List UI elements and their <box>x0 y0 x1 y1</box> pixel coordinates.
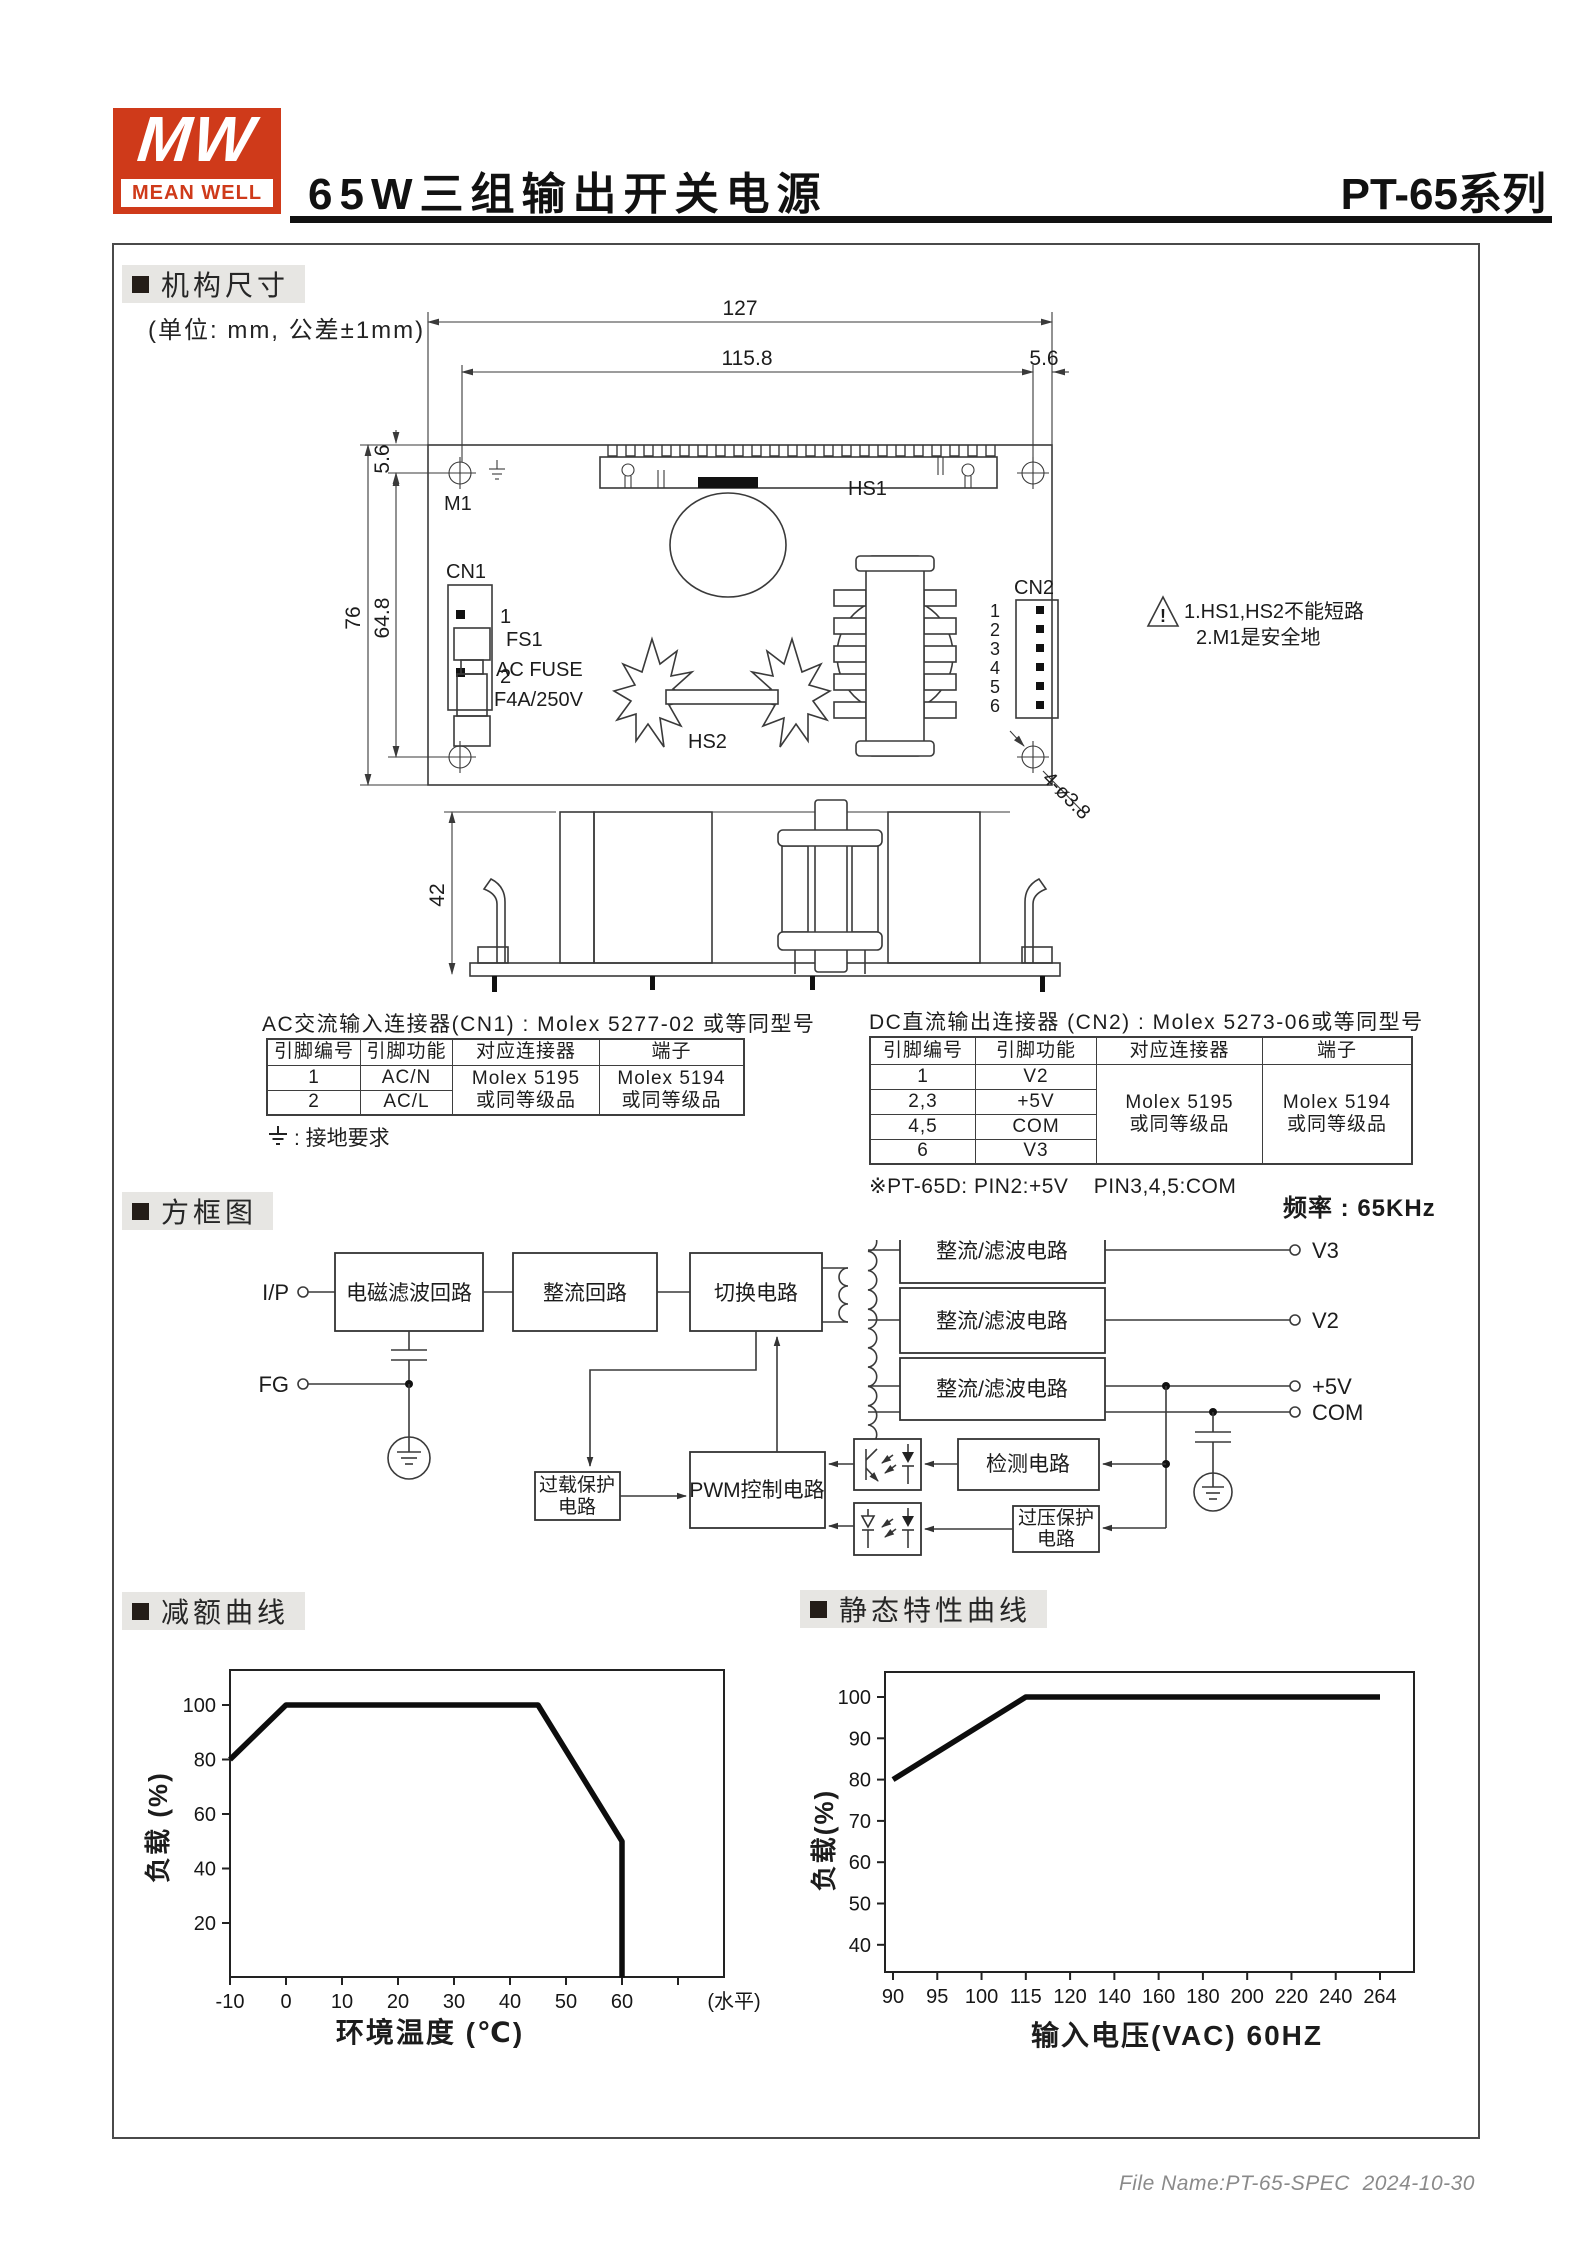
pwm-label: PWM控制电路 <box>689 1479 824 1502</box>
logo-strip: MEAN WELL <box>121 179 273 207</box>
cn2-connector-line1: Molex 5195 <box>1097 1092 1262 1113</box>
svg-text:10: 10 <box>331 1991 353 2013</box>
ground-icon <box>266 1123 290 1151</box>
v2-terminal-label: V2 <box>1312 1308 1339 1333</box>
svg-text:40: 40 <box>194 1859 216 1881</box>
overload-label-1: 过载保护 <box>539 1474 615 1496</box>
cn2-h-func: 引脚功能 <box>976 1037 1097 1064</box>
hs1-heatsink <box>600 445 997 488</box>
cn2-r2-pin: 2,3 <box>870 1089 976 1114</box>
cn2-pin6: 6 <box>990 696 1000 716</box>
section-mechanical-label: 机构尺寸 <box>161 264 289 304</box>
svg-text:-10: -10 <box>216 1991 245 2013</box>
m1-label: M1 <box>444 493 472 515</box>
warning-note: ! 1.HS1,HS2不能短路 2.M1是安全地 <box>1148 597 1364 649</box>
table-row: 1 V2 Molex 5195 或同等级品 Molex 5194 或同等级品 <box>870 1064 1412 1089</box>
cn1-r1-func: AC/N <box>361 1065 453 1090</box>
dim-5-6-top: 5.6 <box>371 444 394 473</box>
dim-64-8: 64.8 <box>371 598 394 639</box>
section-bullet-icon <box>132 1603 149 1620</box>
block-diagram: I/P FG 电磁滤波回路 整流回路 切换电路 <box>112 1240 1476 1580</box>
header-rule <box>290 216 1552 223</box>
cn2-pin2: 2 <box>990 620 1000 640</box>
rect-filter-5v-label: 整流/滤波电路 <box>936 1378 1068 1401</box>
cn2-r4-func: V3 <box>976 1139 1097 1164</box>
series-title: PT-65系列 <box>1000 158 1546 222</box>
logo-mw-letters: MW <box>109 102 285 176</box>
rectifier-label: 整流回路 <box>543 1282 627 1305</box>
cn1-r2-func: AC/L <box>361 1090 453 1115</box>
cn1-h-term: 端子 <box>600 1039 745 1065</box>
cn2-r1-func: V2 <box>976 1064 1097 1089</box>
ground-requirement-note: : 接地要求 <box>266 1122 390 1152</box>
cn1-terminal-line1: Molex 5194 <box>600 1068 743 1089</box>
cn2-pin4: 4 <box>990 658 1000 678</box>
static-y-axis-label: 负载(%) <box>809 1789 839 1891</box>
svg-text:40: 40 <box>499 1991 521 2013</box>
svg-text:50: 50 <box>555 1991 577 2013</box>
transformer-side <box>778 800 882 974</box>
pcb-side-view: 42 <box>426 800 1060 992</box>
dim-5-6-right: 5.6 <box>1029 347 1058 370</box>
static-x-axis-label: 输入电压(VAC) 60HZ <box>1031 2019 1323 2051</box>
cn1-terminal-line2: 或同等级品 <box>600 1090 743 1111</box>
cn1-table: 引脚编号 引脚功能 对应连接器 端子 1 AC/N Molex 5195 或同等… <box>266 1038 745 1116</box>
cn1-connector-line1: Molex 5195 <box>453 1068 599 1089</box>
mean-well-logo: MW MEAN WELL <box>113 108 281 214</box>
mechanical-drawing: M1 HS1 CN1 1 <box>112 300 1476 1000</box>
svg-text:60: 60 <box>849 1852 871 1874</box>
dim-holes: 4-ø3.8 <box>1038 768 1094 824</box>
svg-text:200: 200 <box>1230 1986 1263 2008</box>
fs1-label: FS1 <box>506 629 543 651</box>
cn2-label: CN2 <box>1014 577 1054 599</box>
cn2-table-title: DC直流输出连接器 (CN2) : Molex 5273-06或等同型号 <box>869 1006 1424 1036</box>
svg-text:100: 100 <box>965 1986 998 2008</box>
fuse-type-label: AC FUSE <box>496 659 583 681</box>
series-code: PT-65 <box>1341 170 1458 219</box>
dim-127: 127 <box>722 300 757 320</box>
input-terminal-label: I/P <box>262 1280 289 1305</box>
cn2-terminal-cell: Molex 5194 或同等级品 <box>1263 1064 1413 1164</box>
cn2-r3-func: COM <box>976 1114 1097 1139</box>
detection-label: 检测电路 <box>986 1453 1070 1476</box>
table-row: 1 AC/N Molex 5195 或同等级品 Molex 5194 或同等级品 <box>267 1065 744 1090</box>
optocoupler-2-icon <box>854 1503 921 1555</box>
svg-text:20: 20 <box>194 1913 216 1935</box>
datasheet-page: MW MEAN WELL 65W三组输出开关电源 PT-65系列 机构尺寸 (单… <box>0 0 1587 2245</box>
svg-text:140: 140 <box>1098 1986 1131 2008</box>
pcb-top-view: M1 HS1 CN1 1 <box>428 445 1058 785</box>
hs1-label: HS1 <box>848 478 887 500</box>
svg-text:240: 240 <box>1319 1986 1352 2008</box>
section-block-diagram-label: 方框图 <box>161 1191 257 1231</box>
svg-text:90: 90 <box>849 1728 871 1750</box>
transformer-symbol <box>822 1240 900 1464</box>
cn1-connector-line2: 或同等级品 <box>453 1090 599 1111</box>
mounting-holes <box>444 457 1049 773</box>
logo-brand-text: MEAN WELL <box>132 182 262 205</box>
fuse-rating-label: F4A/250V <box>494 689 584 711</box>
cn2-connector-line2: 或同等级品 <box>1097 1114 1262 1135</box>
emi-filter-label: 电磁滤波回路 <box>346 1282 472 1305</box>
cn2-h-conn: 对应连接器 <box>1097 1037 1263 1064</box>
cn2-pin1: 1 <box>990 601 1000 621</box>
hs2-label: HS2 <box>688 731 727 753</box>
cn1-r1-pin: 1 <box>267 1065 361 1090</box>
section-derating-label: 减额曲线 <box>161 1591 289 1631</box>
cn2-r3-pin: 4,5 <box>870 1114 976 1139</box>
svg-text:90: 90 <box>882 1986 904 2008</box>
overload-label-2: 电路 <box>558 1496 596 1518</box>
svg-text:60: 60 <box>611 1991 633 2013</box>
derating-y-axis-label: 负载 (%) <box>143 1771 173 1883</box>
cap-mark <box>698 477 758 488</box>
cn1-pin1-label: 1 <box>500 606 511 628</box>
svg-text:30: 30 <box>443 1991 465 2013</box>
optocoupler-1-icon <box>854 1439 921 1490</box>
derating-x-axis-label: 环境温度 (℃) <box>336 2017 524 2048</box>
cn1-h-pin: 引脚编号 <box>267 1039 361 1065</box>
svg-text:0: 0 <box>280 1991 291 2013</box>
cn2-variant-note: ※PT-65D: PIN2:+5V PIN3,4,5:COM <box>869 1174 1236 1199</box>
cn2-r1-pin: 1 <box>870 1064 976 1089</box>
cn2-pin3: 3 <box>990 639 1000 659</box>
svg-text:220: 220 <box>1275 1986 1308 2008</box>
dim-42: 42 <box>426 883 449 906</box>
cn1-connector-cell: Molex 5195 或同等级品 <box>453 1065 600 1115</box>
svg-text:60: 60 <box>194 1804 216 1826</box>
fg-ground-branch <box>388 1331 430 1479</box>
fs1-fuse <box>454 628 490 746</box>
ovp-label-1: 过压保护 <box>1018 1507 1094 1529</box>
fg-terminal-label: FG <box>258 1372 289 1397</box>
frequency-note: 频率 : 65KHz <box>1283 1188 1436 1223</box>
file-name-footer: File Name:PT-65-SPEC 2024-10-30 <box>900 2172 1475 2196</box>
svg-text:160: 160 <box>1142 1986 1175 2008</box>
section-static-label: 静态特性曲线 <box>839 1589 1031 1629</box>
svg-text:100: 100 <box>838 1687 871 1709</box>
warning-line2: 2.M1是安全地 <box>1196 626 1320 649</box>
cn2-r4-pin: 6 <box>870 1139 976 1164</box>
dim-115-8: 115.8 <box>722 347 773 370</box>
cn1-r2-pin: 2 <box>267 1090 361 1115</box>
svg-text:20: 20 <box>387 1991 409 2013</box>
earth-ground-icon <box>489 460 505 479</box>
rect-filter-v3-label: 整流/滤波电路 <box>936 1240 1068 1263</box>
section-derating-curve: 减额曲线 <box>122 1592 305 1630</box>
section-bullet-icon <box>132 276 149 293</box>
cn2-h-pin: 引脚编号 <box>870 1037 976 1064</box>
cn1-h-func: 引脚功能 <box>361 1039 453 1065</box>
warning-line1: 1.HS1,HS2不能短路 <box>1184 600 1364 623</box>
v3-terminal-label: V3 <box>1312 1240 1339 1263</box>
com-terminal-label: COM <box>1312 1400 1363 1425</box>
svg-text:120: 120 <box>1053 1986 1086 2008</box>
page-title: 65W三组输出开关电源 <box>308 158 827 222</box>
cn2-table: 引脚编号 引脚功能 对应连接器 端子 1 V2 Molex 5195 或同等级品… <box>869 1036 1413 1165</box>
section-bullet-icon <box>810 1601 827 1618</box>
charts-canvas: 负载 (%) 环境温度 (℃) 负载(%) 输入电压(VAC) 60HZ -10… <box>112 1630 1476 2100</box>
cn2-r2-func: +5V <box>976 1089 1097 1114</box>
cn2-h-term: 端子 <box>1263 1037 1413 1064</box>
svg-text:95: 95 <box>926 1986 948 2008</box>
v5-terminal-label: +5V <box>1312 1374 1352 1399</box>
cn1-terminal-cell: Molex 5194 或同等级品 <box>600 1065 745 1115</box>
section-block-diagram: 方框图 <box>122 1192 273 1230</box>
rect-filter-v2-label: 整流/滤波电路 <box>936 1310 1068 1333</box>
section-mechanical: 机构尺寸 <box>122 265 305 303</box>
capacitor-outline <box>670 493 786 597</box>
cn2-terminal-line2: 或同等级品 <box>1263 1114 1411 1135</box>
cn1-h-conn: 对应连接器 <box>453 1039 600 1065</box>
svg-text:180: 180 <box>1186 1986 1219 2008</box>
switching-label: 切换电路 <box>714 1282 798 1305</box>
ground-note-text: : 接地要求 <box>294 1122 390 1152</box>
cn2-connector-cell: Molex 5195 或同等级品 <box>1097 1064 1263 1164</box>
section-static-curve: 静态特性曲线 <box>800 1590 1047 1628</box>
com-ground-branch <box>1194 1412 1232 1511</box>
section-bullet-icon <box>132 1203 149 1220</box>
ovp-label-2: 电路 <box>1037 1528 1075 1550</box>
transformer <box>834 556 956 756</box>
warning-mark: ! <box>1160 606 1166 626</box>
svg-text:115: 115 <box>1010 1986 1042 2008</box>
svg-text:50: 50 <box>849 1894 871 1916</box>
cn1-label: CN1 <box>446 561 486 583</box>
series-suffix: 系列 <box>1458 170 1546 219</box>
svg-text:264: 264 <box>1363 1986 1396 2008</box>
cn1-table-title: AC交流输入连接器(CN1) : Molex 5277-02 或等同型号 <box>262 1008 815 1038</box>
svg-text:80: 80 <box>194 1750 216 1772</box>
svg-text:100: 100 <box>183 1695 216 1717</box>
svg-text:(水平): (水平) <box>707 1990 760 2013</box>
svg-text:80: 80 <box>849 1770 871 1792</box>
cn2-pin5: 5 <box>990 677 1000 697</box>
svg-text:70: 70 <box>849 1811 871 1833</box>
dim-76: 76 <box>342 606 365 629</box>
svg-text:40: 40 <box>849 1935 871 1957</box>
cn2-terminal-line1: Molex 5194 <box>1263 1092 1411 1113</box>
